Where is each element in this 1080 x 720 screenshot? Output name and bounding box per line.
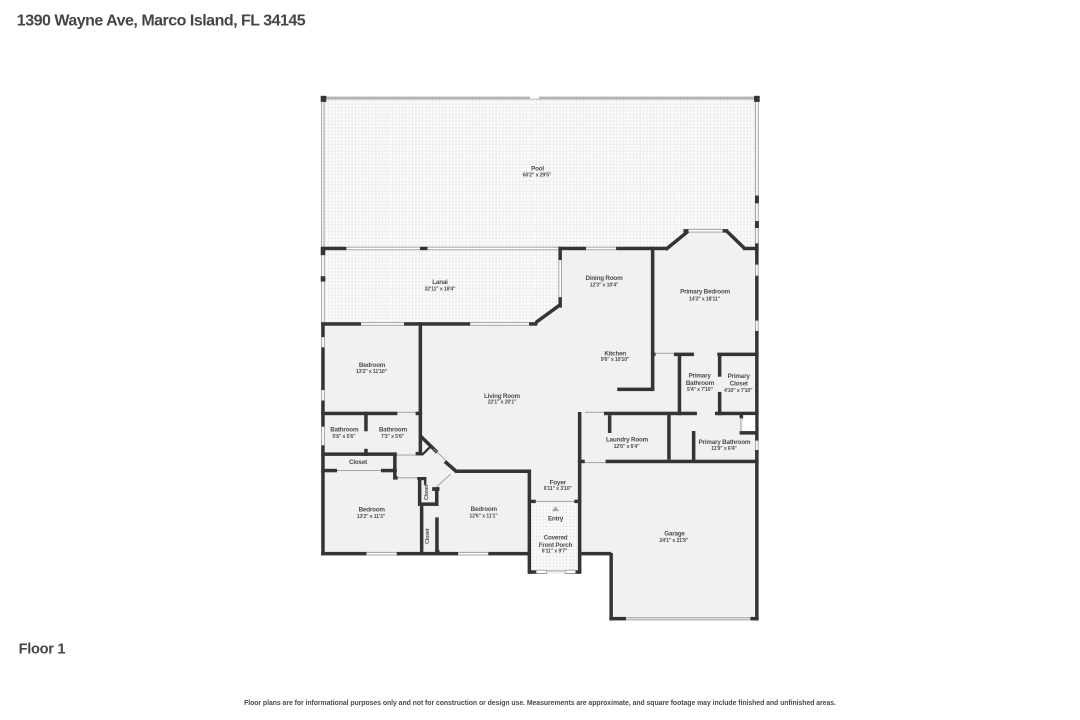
svg-text:Bathroom: Bathroom xyxy=(330,427,359,434)
svg-text:9'6" x 10'10": 9'6" x 10'10" xyxy=(601,357,630,363)
svg-text:Pool: Pool xyxy=(531,166,544,173)
svg-text:Closet: Closet xyxy=(424,484,430,500)
svg-text:11'9" x 6'4": 11'9" x 6'4" xyxy=(711,446,737,452)
svg-text:5'6" x 5'6": 5'6" x 5'6" xyxy=(332,434,356,440)
svg-text:60'2" x 29'5": 60'2" x 29'5" xyxy=(523,173,552,179)
svg-text:Closet: Closet xyxy=(730,381,749,388)
svg-text:12'6" x 6'4": 12'6" x 6'4" xyxy=(614,444,640,450)
svg-text:Covered: Covered xyxy=(544,534,568,541)
svg-text:13'2" x 11'10": 13'2" x 11'10" xyxy=(356,369,388,375)
svg-text:12'6" x 11'1": 12'6" x 11'1" xyxy=(469,513,498,519)
svg-text:Dining Room: Dining Room xyxy=(586,275,624,282)
svg-text:1390 Wayne Ave, Marco Island,: 1390 Wayne Ave, Marco Island, FL 34145 xyxy=(17,12,306,29)
svg-text:13'2" x 11'3": 13'2" x 11'3" xyxy=(357,514,386,520)
svg-text:Floor 1: Floor 1 xyxy=(19,641,66,657)
svg-text:Bedroom: Bedroom xyxy=(471,506,498,513)
svg-text:Lanai: Lanai xyxy=(432,279,448,286)
svg-text:Laundry Room: Laundry Room xyxy=(606,436,649,443)
svg-text:Bedroom: Bedroom xyxy=(359,362,386,369)
svg-text:32'11" x 18'4": 32'11" x 18'4" xyxy=(425,287,457,293)
svg-text:Entry: Entry xyxy=(548,515,564,522)
svg-text:22'1" x 20'1": 22'1" x 20'1" xyxy=(488,400,517,406)
svg-text:Primary Bedroom: Primary Bedroom xyxy=(680,289,730,296)
svg-text:24'1" x 21'9": 24'1" x 21'9" xyxy=(660,538,689,544)
svg-text:5'4" x 7'10": 5'4" x 7'10" xyxy=(687,387,713,393)
svg-text:Primary: Primary xyxy=(728,373,751,380)
svg-text:Closet: Closet xyxy=(349,459,368,466)
svg-text:14'3" x 18'11": 14'3" x 18'11" xyxy=(689,296,721,302)
svg-text:Bathroom: Bathroom xyxy=(686,380,715,387)
svg-text:4'10" x 7'10": 4'10" x 7'10" xyxy=(724,388,753,394)
svg-text:Bedroom: Bedroom xyxy=(359,506,386,513)
svg-text:Floor plans are for informatio: Floor plans are for informational purpos… xyxy=(244,700,836,707)
svg-text:12'3" x 10'4": 12'3" x 10'4" xyxy=(590,282,619,288)
svg-text:6'11" x 3'10": 6'11" x 3'10" xyxy=(544,486,573,492)
svg-text:Closet: Closet xyxy=(425,528,431,544)
svg-text:6'11" x 9'7": 6'11" x 9'7" xyxy=(542,549,568,555)
svg-text:Primary: Primary xyxy=(689,373,712,380)
svg-text:Bathroom: Bathroom xyxy=(379,427,408,434)
svg-text:Garage: Garage xyxy=(664,531,685,538)
svg-text:7'3" x 5'6": 7'3" x 5'6" xyxy=(381,434,405,440)
